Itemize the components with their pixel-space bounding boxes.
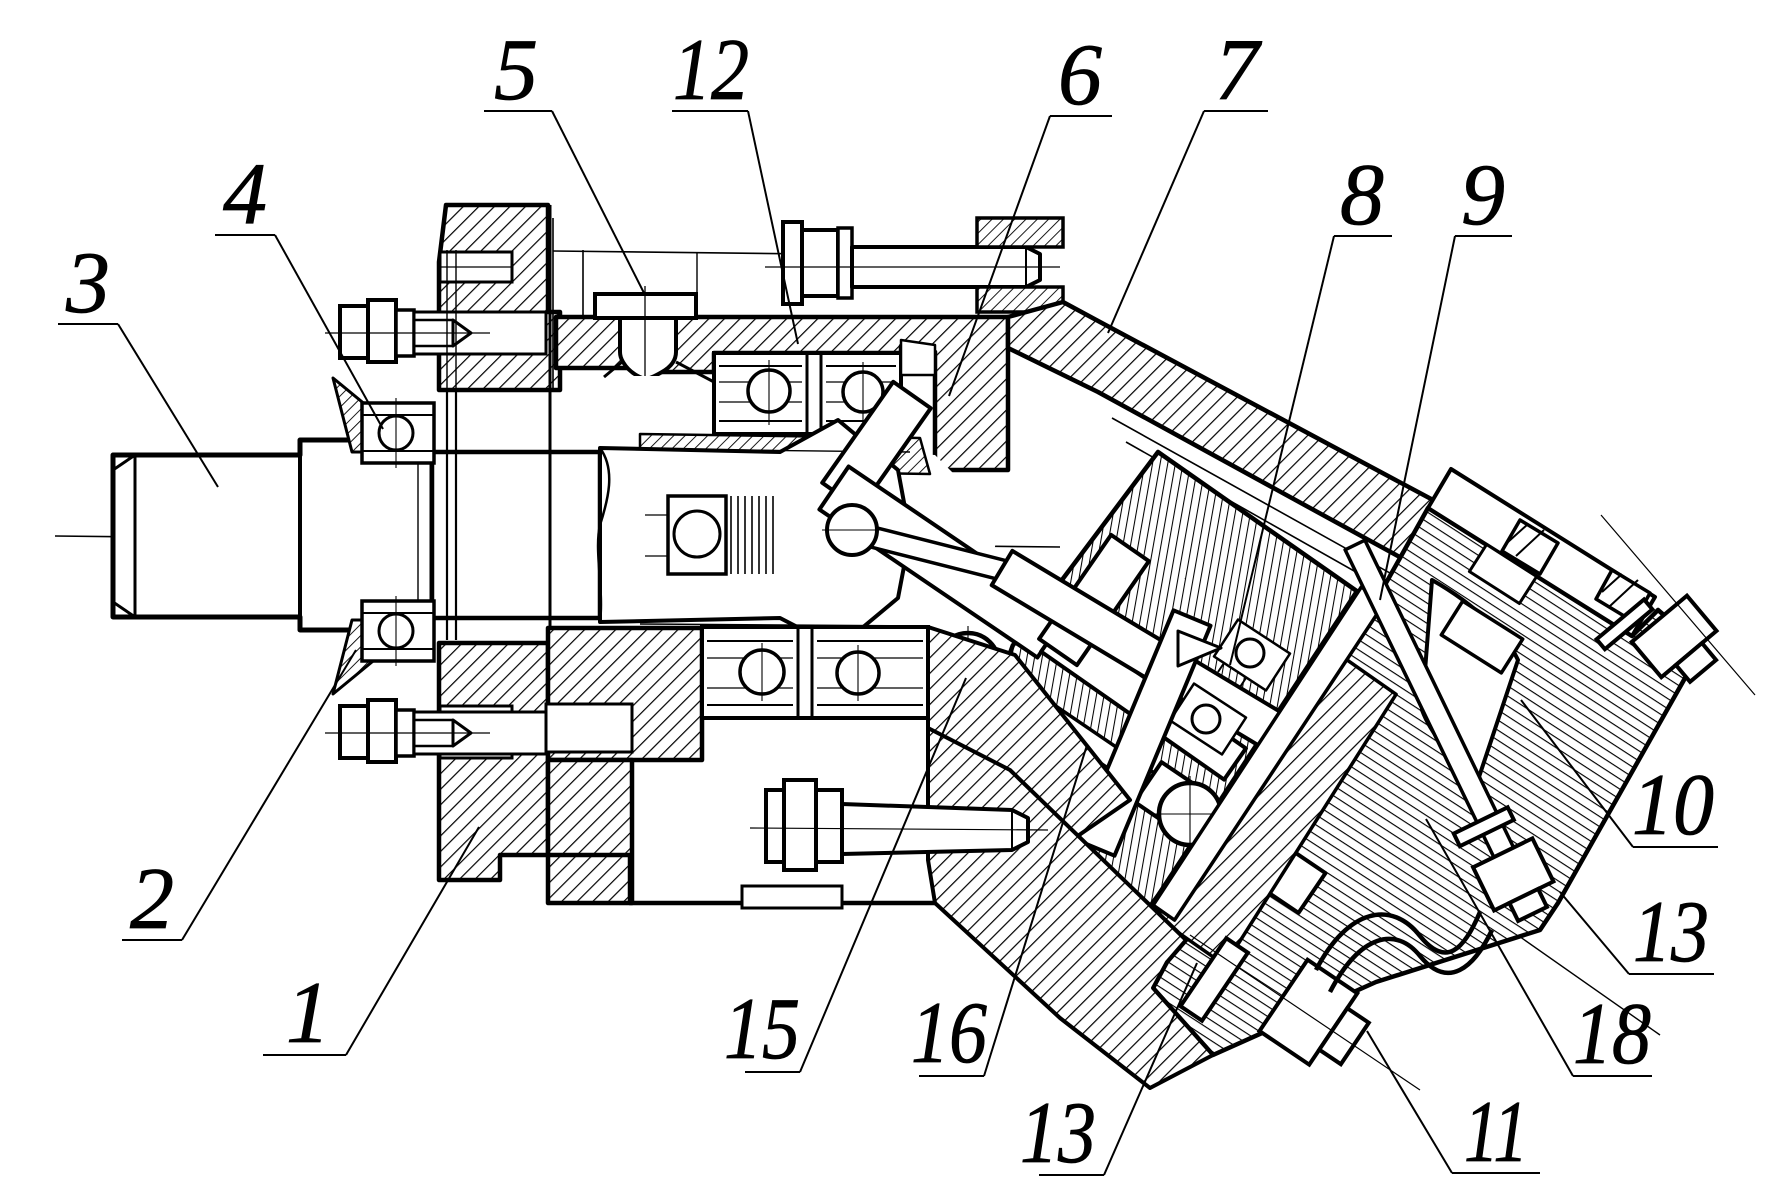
svg-text:13: 13 [1020,1085,1096,1182]
svg-text:7: 7 [1215,22,1263,119]
svg-text:16: 16 [911,985,987,1082]
svg-text:15: 15 [724,981,800,1078]
svg-text:11: 11 [1464,1084,1528,1181]
svg-text:3: 3 [65,235,110,332]
svg-text:18: 18 [1573,986,1651,1083]
svg-text:10: 10 [1632,757,1714,854]
svg-text:5: 5 [494,22,538,119]
svg-text:13: 13 [1633,884,1709,981]
svg-text:8: 8 [1340,147,1384,244]
svg-text:9: 9 [1461,147,1505,244]
svg-text:4: 4 [223,146,267,243]
svg-text:12: 12 [673,22,749,119]
svg-text:6: 6 [1058,27,1102,124]
svg-text:1: 1 [286,965,330,1062]
svg-text:2: 2 [130,851,174,948]
